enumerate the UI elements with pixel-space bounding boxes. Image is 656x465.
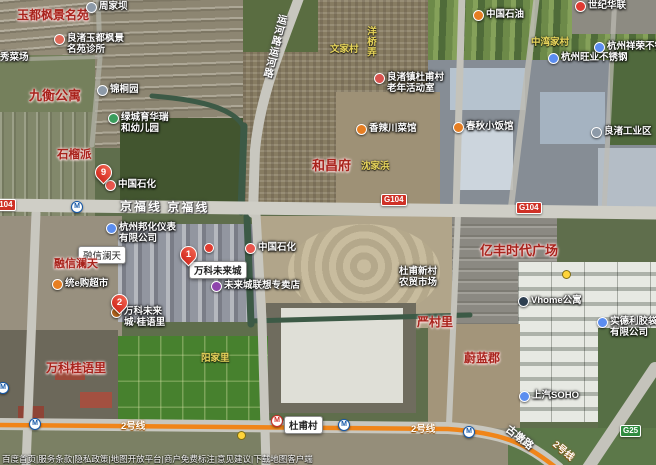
poi-text: 春秋小饭馆 <box>466 121 514 132</box>
label-dufucun[interactable]: 杜甫村 <box>284 416 323 434</box>
poi-senior-center[interactable]: 良渚镇杜甫村老年活动室 <box>374 72 444 94</box>
label-zhongwanjiacun[interactable]: 中湾家村 <box>531 34 569 48</box>
restaurant-icon <box>356 124 367 135</box>
garden-poi-icon <box>97 85 108 96</box>
poi-sinopec-west[interactable]: 中国石化 <box>105 179 156 191</box>
label-yangjiali[interactable]: 阳家里 <box>201 350 230 364</box>
poi-shijihualian[interactable]: 世纪华联 <box>575 0 626 12</box>
satellite-map-viewport[interactable]: 玉都枫景名苑周家坝良渚玉都枫景名苑诊所秀菜场九衡公寓锦桐园绿城育华瑞和幼儿园石榴… <box>0 0 656 465</box>
label-yancunli[interactable]: 严村里 <box>417 313 453 330</box>
poi-shideli[interactable]: 实德利胶袋有限公司 <box>597 316 656 338</box>
poi-text: 未来城联想专卖店 <box>224 280 300 291</box>
poi-text: 秀菜场 <box>0 52 29 63</box>
poi-text: 杜甫新村农贸市场 <box>399 266 437 288</box>
poi-kindergarten[interactable]: 绿城育华瑞和幼儿园 <box>108 112 169 134</box>
road-label-line2-c: 2号线 <box>550 437 578 463</box>
badge-g104-west: G104 <box>0 199 16 211</box>
marker-dot-red[interactable] <box>204 243 214 253</box>
poi-lenovo-store[interactable]: 未来城联想专卖店 <box>211 280 300 292</box>
company-icon <box>597 317 608 328</box>
label-yifeng-plaza[interactable]: 亿丰时代广场 <box>480 240 558 259</box>
clinic-icon <box>54 34 65 45</box>
road-label-gudunlu: 古墩路 <box>503 422 537 453</box>
office-icon <box>519 391 530 402</box>
pin-number: 1 <box>181 247 196 262</box>
badge-g25: G25 <box>620 425 641 437</box>
poi-soho[interactable]: 上汽SOHO <box>519 390 579 402</box>
label-shiliupai[interactable]: 石榴派 <box>57 146 92 162</box>
road-label-jingfuxian: 京福线 京福线 <box>120 197 210 216</box>
poi-text: 良渚玉都枫景名苑诊所 <box>67 33 124 55</box>
label-jiuheng[interactable]: 九衡公寓 <box>29 85 81 104</box>
poi-text: 实德利胶袋有限公司 <box>610 316 656 338</box>
poi-text: 中国石化 <box>258 242 296 253</box>
gas-station-icon <box>473 10 484 21</box>
gas-station-icon <box>105 180 116 191</box>
poi-wangye-steel[interactable]: 杭州旺业不锈钢 <box>548 52 628 64</box>
road-label-line2-b: 2号线 <box>411 421 435 435</box>
metro-logo-1[interactable]: M <box>71 201 83 213</box>
metro-logo-5[interactable]: M <box>463 426 475 438</box>
poi-jintongyuan[interactable]: 锦桐园 <box>97 84 139 96</box>
community-center-icon <box>374 73 385 84</box>
poi-zhoujiaba[interactable]: 周家坝 <box>86 1 128 13</box>
gas-station-icon <box>245 243 256 254</box>
badge-g104-mid: G104 <box>381 194 407 206</box>
poi-tonge-market[interactable]: 统e购超市 <box>52 278 108 290</box>
poi-text: 绿城育华瑞和幼儿园 <box>121 112 169 134</box>
electronics-store-icon <box>211 281 222 292</box>
poi-banghua-company[interactable]: 杭州邦化仪表有限公司 <box>106 222 176 244</box>
poi-text: 上汽SOHO <box>532 390 579 401</box>
poi-chunqiu-restaurant[interactable]: 春秋小饭馆 <box>453 121 514 133</box>
label-rongxin-red[interactable]: 融信澜天 <box>54 255 98 271</box>
poi-xiangrong-steel[interactable]: 杭州祥荣不锈钢 <box>594 41 656 53</box>
poi-petrochina[interactable]: 中国石油 <box>473 9 524 21</box>
apartment-icon <box>518 296 529 307</box>
poi-clinic[interactable]: 良渚玉都枫景名苑诊所 <box>54 33 124 55</box>
restaurant-icon <box>453 122 464 133</box>
labels-layer: 玉都枫景名苑周家坝良渚玉都枫景名苑诊所秀菜场九衡公寓锦桐园绿城育华瑞和幼儿园石榴… <box>0 0 656 465</box>
pin-number: 2 <box>112 295 127 310</box>
poi-market-partial[interactable]: 秀菜场 <box>0 52 29 64</box>
metro-logo-4[interactable]: M <box>338 419 350 431</box>
metro-logo-3[interactable]: M <box>29 418 41 430</box>
label-yudufengjing[interactable]: 玉都枫景名苑 <box>17 6 89 23</box>
poi-vhome[interactable]: Vhome公寓 <box>518 295 582 307</box>
label-shenjiabang[interactable]: 沈家浜 <box>361 158 390 172</box>
marker-dot-yellow-1[interactable] <box>562 270 571 279</box>
label-yangqiaolong[interactable]: 洋桥弄 <box>363 26 377 58</box>
poi-text: 中国石油 <box>486 9 524 20</box>
poi-text: 良渚镇杜甫村老年活动室 <box>387 72 444 94</box>
poi-text: 万科未来城·桂语里 <box>124 306 165 328</box>
marker-dot-yellow-2[interactable] <box>237 431 246 440</box>
label-wanke-guiyuli[interactable]: 万科桂语里 <box>46 359 106 376</box>
poi-nongmao-market[interactable]: 杜甫新村农贸市场 <box>399 266 437 288</box>
poi-text: 香辣川菜馆 <box>369 123 417 134</box>
poi-text: 良渚工业区 <box>604 126 652 137</box>
poi-text: 杭州祥荣不锈钢 <box>607 41 656 52</box>
poi-text: 锦桐园 <box>110 84 139 95</box>
label-wanke-box[interactable]: 万科未来城 <box>189 261 247 279</box>
poi-text: 周家坝 <box>99 1 128 12</box>
poi-text: 世纪华联 <box>588 0 626 11</box>
kindergarten-icon <box>108 113 119 124</box>
supermarket-icon <box>52 279 63 290</box>
pin-number: 9 <box>96 165 111 180</box>
poi-text: 杭州邦化仪表有限公司 <box>119 222 176 244</box>
poi-sinopec-east[interactable]: 中国石化 <box>245 242 296 254</box>
label-weilanjun[interactable]: 蔚蓝郡 <box>464 349 500 366</box>
poi-xiangla-restaurant[interactable]: 香辣川菜馆 <box>356 123 417 135</box>
poi-text: Vhome公寓 <box>531 295 582 306</box>
badge-g104-east: G104 <box>516 202 542 214</box>
label-wenjiacun[interactable]: 文家村 <box>330 41 359 55</box>
industrial-zone-icon <box>591 127 602 138</box>
metro-logo-2[interactable]: M <box>0 382 9 394</box>
supermarket-icon <box>575 1 586 12</box>
village-poi-icon <box>86 2 97 13</box>
label-hechangfu[interactable]: 和昌府 <box>312 155 351 174</box>
company-icon <box>548 53 559 64</box>
company-icon <box>594 42 605 53</box>
poi-industrial-zone[interactable]: 良渚工业区 <box>591 126 652 138</box>
road-label-line2-a: 2号线 <box>121 418 145 432</box>
metro-station-dufucun[interactable]: M <box>271 415 283 427</box>
company-icon <box>106 223 117 234</box>
poi-text: 杭州旺业不锈钢 <box>561 52 628 63</box>
road-label-yunhelu: 运河路运河路 <box>258 12 289 80</box>
map-attribution[interactable]: 百度首页|服务条款|隐私政策|地图开放平台|商户免费标注|意见建议|下载地图客户… <box>2 453 313 465</box>
poi-text: 统e购超市 <box>65 278 108 289</box>
poi-text: 中国石化 <box>118 179 156 190</box>
